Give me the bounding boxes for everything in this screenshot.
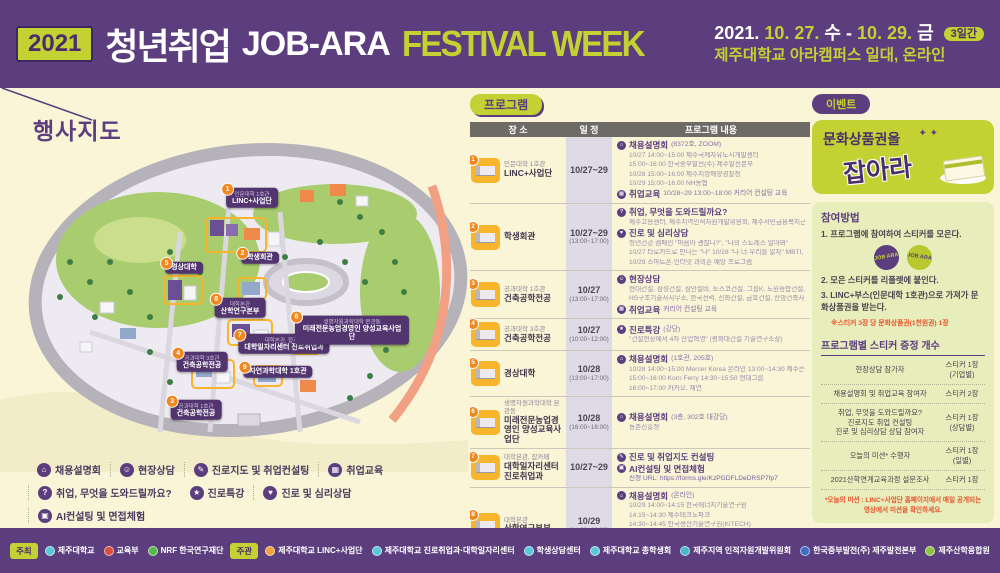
program-date-cell: 10/28(13:00~17:00) — [566, 351, 612, 396]
water-drop-icon — [524, 546, 534, 556]
program-place-cell: 5경상대학 — [470, 351, 566, 396]
legend-label: 현장상담 — [138, 462, 175, 477]
legend: ⌂채용설명회☺현장상담✎진로지도 및 취업컨설팅▦취업교육?취업, 무엇을 도와… — [28, 462, 458, 523]
sticker-green-icon: JOB ARA — [905, 244, 933, 272]
program-row: 4공과대학 3호관건축공학전공10/27(10:00~12:00)★진로특강(강… — [470, 319, 810, 351]
legend-item: ⌂채용설명회 — [28, 462, 110, 477]
sponsor-logo: 제주산학융합원 — [925, 545, 990, 556]
program-detail-line: "건설현장에서 4차 산업혁명" (평화대건설 기술연구소장) — [629, 336, 805, 344]
item-note: (강당) — [663, 326, 680, 334]
program-content-cell: ⌂채용설명회(3층, 302호 대강당)농촌진흥청 — [612, 397, 810, 448]
place-name: 학생회관 — [504, 232, 535, 242]
place-number-badge: 7 — [470, 451, 479, 463]
program-detail-line: 청년건강 캠페인 "마음아 괜찮니?", "나의 스트레스 알아봐" — [629, 240, 805, 248]
organizer-badge: 주관 — [230, 543, 258, 559]
heart-icon: ♥ — [617, 229, 626, 238]
sponsor-logo: 제주대학교 — [45, 545, 95, 556]
sticker-table-row: 취업, 무엇을 도와드릴까요? 진로지도 취업 컨설팅 진로 및 심리상담 상담… — [821, 404, 985, 443]
building-icon: 6 — [471, 410, 500, 435]
program-place-cell: 8대학본관산학연구본부 — [470, 488, 566, 528]
program-detail-line: 15:00~16:00 Korn Ferry 14:30~15:50 현대그룹 — [629, 375, 805, 383]
program-row: 3공과대학 1호관건축공학전공10/27(13:00~17:00)☺현장상담현대… — [470, 271, 810, 319]
pencil-icon: ✎ — [194, 463, 208, 477]
gift-card-icon — [940, 154, 986, 184]
program-time: (10:00~12:00) — [569, 336, 608, 344]
item-title-text: 채용설명회 — [629, 412, 668, 423]
program-item-title: ▦취업교육10/28~29 13:00~18:00 커리어 컨설팅 교육 — [617, 189, 805, 200]
item-title-text: 진로 및 심리상담 — [629, 228, 688, 239]
program-row: 2학생회관10/27~29(13:00~17:00)?취업, 무엇을 도와드릴까… — [470, 204, 810, 271]
item-title-text: AI컨설팅 및 면접체험 — [629, 464, 705, 475]
program-place-cell: 2학생회관 — [470, 204, 566, 270]
building-icon: ⌂ — [617, 141, 626, 150]
place-number-badge: 5 — [470, 357, 479, 369]
program-date: 10/27~29 — [570, 462, 608, 473]
date-end-day: 금 — [917, 23, 934, 43]
nrf-logo-icon — [148, 546, 158, 556]
program-item-title: ⌂채용설명회(8372호, ZOOM) — [617, 140, 805, 151]
organizer-logos: 제주대학교 LINC+사업단제주대학교 진로취업과·대학일자리센터학생상담센터제… — [265, 545, 990, 556]
building-icon: ⌂ — [617, 355, 626, 364]
program-row: 6생명자원과학대학 본관동미래전문농업경영인 양성교육사업단10/28(16:0… — [470, 397, 810, 449]
program-rows: 1인문대학 1호관LINC+사업단10/27~29⌂채용설명회(8372호, Z… — [470, 137, 810, 528]
sponsor-bar: 주최 제주대학교교육부NRF 한국연구재단 주관 제주대학교 LINC+사업단제… — [0, 528, 1000, 573]
sponsor-logo: 제주대학교 총학생회 — [590, 545, 671, 556]
campus-map-illustration — [0, 132, 468, 472]
building-shape — [476, 369, 495, 378]
item-title-text: 진로특강 — [629, 325, 660, 336]
water-drop-icon — [372, 546, 382, 556]
building-icon: 7 — [471, 455, 500, 480]
sticker-exchange-note: ※스티커 3장 당 문화상품권(1천원권) 1장 — [831, 317, 985, 327]
method-title: 참여방법 — [821, 210, 985, 225]
program-item-title: ⌂채용설명회(1호관, 205호) — [617, 354, 805, 365]
place-text: 학생회관 — [504, 232, 535, 242]
place-number-badge: 8 — [470, 509, 479, 521]
program-date-cell: 10/27~29 — [566, 449, 612, 487]
place-text: 공과대학 3호관건축공학전공 — [504, 326, 551, 344]
col-place: 장 소 — [470, 123, 566, 136]
ai-icon: ▣ — [617, 464, 626, 473]
program-date: 10/27 — [578, 285, 601, 296]
program-detail-line: 농촌진흥청 — [629, 424, 805, 432]
people-icon: ☺ — [120, 463, 134, 477]
place-number-badge: 3 — [470, 278, 479, 290]
date-start-day: 수 — [824, 23, 841, 43]
legend-item: ☺현장상담 — [110, 462, 184, 477]
program-detail-line: 16:00~17:00 카카오, 재연 — [629, 385, 805, 393]
program-time: (13:00~17:00) — [569, 375, 608, 383]
place-name: 경상대학 — [504, 369, 535, 379]
water-drop-icon — [45, 546, 55, 556]
place-text: 공과대학 1호관건축공학전공 — [504, 286, 551, 304]
event-panel: 이벤트 문화상품권을 잡아라 ✦ ✦ 참여방법 1. 프로그램에 참여하여 스티… — [812, 94, 994, 573]
item-title-text: 채용설명회 — [629, 354, 668, 365]
sticker-table: 현장상담 참가자스티커 1장 (기업별)채용설명회 및 취업교육 참여자스티커 … — [821, 356, 985, 491]
date-dash: - — [846, 23, 857, 43]
col-content: 프로그램 내용 — [612, 123, 810, 136]
header-banner: 2021 청년취업 JOB-ARA FESTIVAL WEEK 2021. 10… — [0, 0, 1000, 88]
legend-item: ♥진로 및 심리상담 — [253, 485, 360, 500]
program-item-title: ▦취업교육커리어 컨설팅 교육 — [617, 305, 805, 316]
gov-emblem-icon — [104, 546, 114, 556]
item-title-text: 채용설명회 — [629, 491, 668, 502]
building-icon: ⌂ — [617, 491, 626, 500]
question-icon: ? — [617, 208, 626, 217]
program-table-header: 장 소 일 정 프로그램 내용 — [470, 122, 810, 137]
host-badge: 주최 — [10, 543, 38, 559]
sticker-program: 채용설명회 및 취업교육 참여자 — [821, 389, 939, 399]
program-item-title: ⌂채용설명회(3층, 302호 대강당) — [617, 412, 805, 423]
sticker-purple-icon: JOB ARA — [872, 243, 901, 272]
step-3: 3. LINC+부스(인문대학 1호관)으로 가져가 문화상품권을 받는다. — [821, 290, 985, 312]
sticker-program: 현장상담 참가자 — [821, 365, 939, 375]
ai-icon: ▣ — [38, 509, 52, 523]
sticker-table-row: 오늘의 미션* 수행자스티커 1장 (일별) — [821, 442, 985, 471]
sticker-table-row: 채용설명회 및 취업교육 참여자스티커 2장 — [821, 385, 985, 404]
monitor-icon: ▦ — [617, 305, 626, 314]
star-icon: ★ — [190, 486, 204, 500]
sponsor-label: 교육부 — [117, 545, 139, 556]
legend-item: ★진로특강 — [181, 485, 254, 500]
program-detail-line: 14:30~14:45 한국생산기술연구원(KITECH) — [629, 521, 805, 528]
sponsor-logo: 제주지역 인적자원개발위원회 — [680, 545, 791, 556]
sponsor-label: 제주대학교 LINC+사업단 — [278, 545, 362, 556]
date-year: 2021. — [714, 23, 759, 43]
item-title-text: 취업교육 — [629, 189, 660, 200]
sponsor-logo: 제주대학교 LINC+사업단 — [265, 545, 362, 556]
step-2: 2. 모은 스티커를 리플렛에 붙인다. — [821, 275, 985, 286]
place-number-badge: 4 — [470, 318, 479, 330]
participation-box: 참여방법 1. 프로그램에 참여하여 스티커를 모은다. JOB ARA JOB… — [812, 202, 994, 523]
sticker-count: 스티커 2장 — [939, 389, 985, 399]
program-detail-line: 10/29 15:00~16:00 NH농협 — [629, 180, 805, 188]
legend-item: ▣AI컨설팅 및 면접체험 — [28, 508, 154, 523]
building-icon: 4 — [471, 322, 500, 347]
sticker-table-row: 2021산학연계교육과정 설문조사스티커 1장 — [821, 471, 985, 490]
item-note: 10/28~29 13:00~18:00 커리어 컨설팅 교육 — [663, 190, 787, 198]
people-icon: ☺ — [617, 275, 626, 284]
program-date-cell: 10/27~29(13:00~17:00) — [566, 204, 612, 270]
program-detail-line: 10/27 14:00~15:00 제주국제자유도시개발센터 — [629, 152, 805, 160]
program-row: 7대학본관, 잡카페대학일자리센터 진로취업과10/27~29✎진로 및 취업지… — [470, 449, 810, 488]
program-content-cell: ☺현장상담현대건설, 삼성건설, 삼안설비, 토스코건설, 그룹K, 도원종합건… — [612, 271, 810, 318]
poster-canvas: 2021 청년취업 JOB-ARA FESTIVAL WEEK 2021. 10… — [0, 0, 1000, 573]
program-content-cell: ⌂채용설명회(8372호, ZOOM)10/27 14:00~15:00 제주국… — [612, 137, 810, 203]
program-place-cell: 4공과대학 3호관건축공학전공 — [470, 319, 566, 350]
date-start: 10. 27. — [764, 23, 819, 43]
legend-item: ?취업, 무엇을 도와드릴까요? — [28, 485, 181, 500]
monitor-icon: ▦ — [328, 463, 342, 477]
item-title-text: 취업, 무엇을 도와드릴까요? — [629, 207, 727, 218]
building-shape — [476, 521, 495, 528]
leaf-logo-icon — [925, 546, 935, 556]
question-icon: ? — [38, 486, 52, 500]
legend-label: AI컨설팅 및 면접체험 — [56, 508, 145, 523]
heart-icon: ♥ — [263, 486, 277, 500]
sticker-table-title: 프로그램별 스티커 증정 개수 — [821, 337, 985, 356]
event-section-badge: 이벤트 — [812, 94, 870, 114]
sticker-count: 스티커 1장 (기업별) — [939, 360, 985, 380]
sponsor-label: 제주대학교 — [58, 545, 95, 556]
legend-label: 진로특강 — [208, 485, 245, 500]
program-detail-line: 10/28 15:00~16:00 제주지방해양경찰청 — [629, 171, 805, 179]
program-item-title: ⌂채용설명회(온라인) — [617, 491, 805, 502]
building-icon: 5 — [471, 361, 500, 386]
program-date: 10/28 — [578, 413, 601, 424]
prize-card-line2: 잡아라 — [841, 147, 913, 190]
building-shape — [476, 290, 495, 299]
program-date: 10/27 — [578, 325, 601, 336]
sponsor-label: 학생상담센터 — [537, 545, 581, 556]
pencil-icon: ✎ — [617, 453, 626, 462]
program-date-cell: 10/27(10:00~12:00) — [566, 319, 612, 350]
building-icon: ⌂ — [37, 463, 51, 477]
building-shape — [476, 233, 495, 242]
program-item-title: ✎진로 및 취업지도 컨설팅 — [617, 452, 805, 463]
sponsor-logo: 학생상담센터 — [524, 545, 581, 556]
legend-label: 진로 및 심리상담 — [281, 485, 351, 500]
legend-label: 취업교육 — [346, 462, 383, 477]
date-end: 10. 29. — [857, 23, 912, 43]
program-date: 10/27~29 — [570, 228, 608, 239]
place-text: 생명자원과학대학 본관동미래전문농업경영인 양성교육사업단 — [504, 400, 565, 445]
program-panel: 프로그램 장 소 일 정 프로그램 내용 1인문대학 1호관LINC+사업단10… — [470, 94, 810, 528]
building-icon: 3 — [471, 282, 500, 307]
sponsor-logo: 제주대학교 진로취업과·대학일자리센터 — [372, 545, 515, 556]
program-item-title: ?취업, 무엇을 도와드릴까요? — [617, 207, 805, 218]
building-shape — [476, 166, 495, 175]
sponsor-logo: NRF 한국연구재단 — [148, 545, 224, 556]
sponsor-label: 제주대학교 진로취업과·대학일자리센터 — [385, 545, 515, 556]
duration-badge: 3일간 — [944, 27, 984, 41]
program-row: 5경상대학10/28(13:00~17:00)⌂채용설명회(1호관, 205호)… — [470, 351, 810, 397]
step-1: 1. 프로그램에 참여하여 스티커를 모은다. — [821, 229, 985, 240]
building-icon: 8 — [471, 513, 500, 528]
sparkle-icon: ✦ ✦ — [918, 128, 938, 139]
water-drop-icon — [590, 546, 600, 556]
program-date: 10/28 — [578, 364, 601, 375]
sponsor-label: 제주지역 인적자원개발위원회 — [693, 545, 791, 556]
building-shape — [476, 330, 495, 339]
sticker-count: 스티커 1장 — [939, 475, 985, 485]
program-content-cell: ⌂채용설명회(1호관, 205호)10/28 14:00~15:00 Merce… — [612, 351, 810, 396]
year-badge: 2021 — [16, 26, 93, 62]
program-detail-line: 10/29 14:00~14:15 한국에너지기술연구원 — [629, 502, 805, 510]
title-jobara: JOB-ARA — [242, 25, 390, 64]
building-shape — [476, 463, 495, 472]
sponsor-logo: 한국중부발전(주) 제주발전본부 — [800, 545, 916, 556]
item-note: (1호관, 205호) — [671, 355, 713, 363]
program-place-cell: 3공과대학 1호관건축공학전공 — [470, 271, 566, 318]
place-sub: 생명자원과학대학 본관동 — [504, 400, 565, 416]
place-number-badge: 6 — [470, 406, 479, 418]
globe-logo-icon — [800, 546, 810, 556]
program-item-title: ▣AI컨설팅 및 면접체험 — [617, 464, 805, 475]
program-date-cell: 10/27~29 — [566, 137, 612, 203]
program-detail-line: 10/29 스마트폰·인터넷 과의존 예방 프로그램 — [629, 259, 805, 267]
signup-url-link[interactable]: 신청 URL: https://forms.gle/KzPGDFLDeDRSP7… — [629, 475, 805, 483]
legend-label: 진로지도 및 취업컨설팅 — [212, 462, 310, 477]
place-text: 대학본관산학연구본부 — [504, 517, 551, 528]
sponsor-label: 한국중부발전(주) 제주발전본부 — [813, 545, 916, 556]
sticker-table-row: 현장상담 참가자스티커 1장 (기업별) — [821, 356, 985, 385]
program-detail-line: 10/28 14:00~15:00 Mercer Korea 온라인 13:00… — [629, 366, 805, 374]
program-date-cell: 10/27(13:00~17:00) — [566, 271, 612, 318]
program-content-cell: ⌂채용설명회(온라인)10/29 14:00~14:15 한국에너지기술연구원1… — [612, 488, 810, 528]
program-item-title: ☺현장상담 — [617, 274, 805, 285]
place-name: LINC+사업단 — [504, 169, 552, 179]
sponsor-logo: 교육부 — [104, 545, 139, 556]
place-text: 대학본관, 잡카페대학일자리센터 진로취업과 — [504, 454, 565, 481]
sponsor-label: 제주대학교 총학생회 — [603, 545, 671, 556]
sticker-program: 2021산학연계교육과정 설문조사 — [821, 475, 939, 485]
item-note: 커리어 컨설팅 교육 — [663, 306, 717, 314]
title-korean: 청년취업 — [105, 18, 229, 70]
monitor-icon: ▦ — [617, 190, 626, 199]
host-logos: 제주대학교교육부NRF 한국연구재단 — [45, 545, 224, 556]
place-name: 건축공학전공 — [504, 294, 551, 304]
program-place-cell: 1인문대학 1호관LINC+사업단 — [470, 137, 566, 203]
program-date: 10/29 — [578, 516, 601, 527]
program-detail-line: 제주고용센터, 제주지역인적자원개발위원회, 제주서민금융복지근로자지원센터, … — [629, 219, 805, 227]
legend-label: 채용설명회 — [55, 462, 101, 477]
place-name: 대학일자리센터 진로취업과 — [504, 462, 565, 482]
location-line: 제주대학교 아라캠퍼스 일대, 온라인 — [714, 46, 984, 66]
program-detail-line: 10/27 타로카드로 만나는 "나" 10/28 "나·너·우리를 알자" M… — [629, 249, 805, 257]
col-date: 일 정 — [566, 123, 612, 136]
program-time: (16:00~18:00) — [569, 424, 608, 432]
program-time: (13:00~17:00) — [569, 296, 608, 304]
building-icon: 2 — [471, 225, 500, 250]
program-item-title: ♥진로 및 심리상담 — [617, 228, 805, 239]
program-item-title: ★진로특강(강당) — [617, 325, 805, 336]
program-content-cell: ★진로특강(강당)"건설현장에서 4차 산업혁명" (평화대건설 기술연구소장) — [612, 319, 810, 350]
item-title-text: 취업교육 — [629, 305, 660, 316]
program-date-cell: 10/28(16:00~18:00) — [566, 397, 612, 448]
program-row: 1인문대학 1호관LINC+사업단10/27~29⌂채용설명회(8372호, Z… — [470, 137, 810, 204]
place-text: 경상대학 — [504, 369, 535, 379]
item-note: (온라인) — [671, 492, 694, 500]
program-date-cell: 10/29(14:00~18:00) — [566, 488, 612, 528]
place-name: 건축공학전공 — [504, 334, 551, 344]
program-place-cell: 7대학본관, 잡카페대학일자리센터 진로취업과 — [470, 449, 566, 487]
event-prize-card: 문화상품권을 잡아라 ✦ ✦ — [812, 120, 994, 194]
program-detail-line: 현대건설, 삼성건설, 삼안설비, 토스코건설, 그룹K, 도원종합건설, 로제… — [629, 286, 805, 294]
building-icon: ⌂ — [617, 413, 626, 422]
legend-item: ▦취업교육 — [318, 462, 392, 477]
building-shape — [476, 418, 495, 427]
program-content-cell: ?취업, 무엇을 도와드릴까요?제주고용센터, 제주지역인적자원개발위원회, 제… — [612, 204, 810, 270]
place-text: 인문대학 1호관LINC+사업단 — [504, 161, 552, 179]
program-table: 장 소 일 정 프로그램 내용 1인문대학 1호관LINC+사업단10/27~2… — [470, 122, 810, 528]
sticker-samples: JOB ARA JOB ARA — [821, 245, 985, 270]
sticker-count: 스티커 1장 (상담별) — [939, 413, 985, 433]
program-detail-line: 15:00~16:00 한국중부발전(주)·제주발전본부 — [629, 161, 805, 169]
program-date: 10/27~29 — [570, 165, 608, 176]
building-icon: 1 — [471, 158, 500, 183]
sponsor-label: 제주산학융합원 — [938, 545, 990, 556]
sponsor-label: NRF 한국연구재단 — [161, 545, 224, 556]
event-map-panel: 행사지도 — [0, 88, 468, 528]
sticker-program: 취업, 무엇을 도와드릴까요? 진로지도 취업 컨설팅 진로 및 심리상담 상담… — [821, 408, 939, 438]
program-detail-line: HS구조기술사사무소, 한국전력, 신화건설, 금호건설, 산방건축사사무소, … — [629, 295, 805, 303]
program-time: (13:00~17:00) — [569, 238, 608, 246]
header-date-block: 2021. 10. 27. 수 - 10. 29. 금 3일간 제주대학교 아라… — [714, 22, 984, 66]
item-title-text: 현장상담 — [629, 274, 660, 285]
program-row: 8대학본관산학연구본부10/29(14:00~18:00)⌂채용설명회(온라인)… — [470, 488, 810, 528]
item-title-text: 진로 및 취업지도 컨설팅 — [629, 452, 714, 463]
place-number-badge: 1 — [470, 154, 479, 166]
sticker-program: 오늘의 미션* 수행자 — [821, 451, 939, 461]
legend-label: 취업, 무엇을 도와드릴까요? — [56, 485, 172, 500]
star-icon: ★ — [617, 325, 626, 334]
place-name: 미래전문농업경영인 양성교육사업단 — [504, 416, 565, 445]
mission-note: *오늘의 미션 : LINC+사업단 홈페이지에서 매일 공개되는 영상에서 미… — [821, 496, 985, 515]
sticker-count: 스티커 1장 (일별) — [939, 446, 985, 466]
legend-item: ✎진로지도 및 취업컨설팅 — [184, 462, 319, 477]
infinity-logo-icon — [680, 546, 690, 556]
item-note: (3층, 302호 대강당) — [671, 414, 728, 422]
program-detail-line: 14:15~14:30 제주테크노파크 — [629, 512, 805, 520]
program-place-cell: 6생명자원과학대학 본관동미래전문농업경영인 양성교육사업단 — [470, 397, 566, 448]
program-section-badge: 프로그램 — [470, 94, 542, 115]
prize-card-line1: 문화상품권을 — [823, 129, 983, 149]
linc-logo-icon — [265, 546, 275, 556]
item-note: (8372호, ZOOM) — [671, 141, 721, 149]
item-title-text: 채용설명회 — [629, 140, 668, 151]
place-number-badge: 2 — [470, 221, 479, 233]
program-content-cell: ✎진로 및 취업지도 컨설팅▣AI컨설팅 및 면접체험신청 URL: https… — [612, 449, 810, 487]
date-range: 2021. 10. 27. 수 - 10. 29. 금 3일간 — [714, 22, 984, 45]
title-festival-week: FESTIVAL WEEK — [402, 23, 644, 65]
